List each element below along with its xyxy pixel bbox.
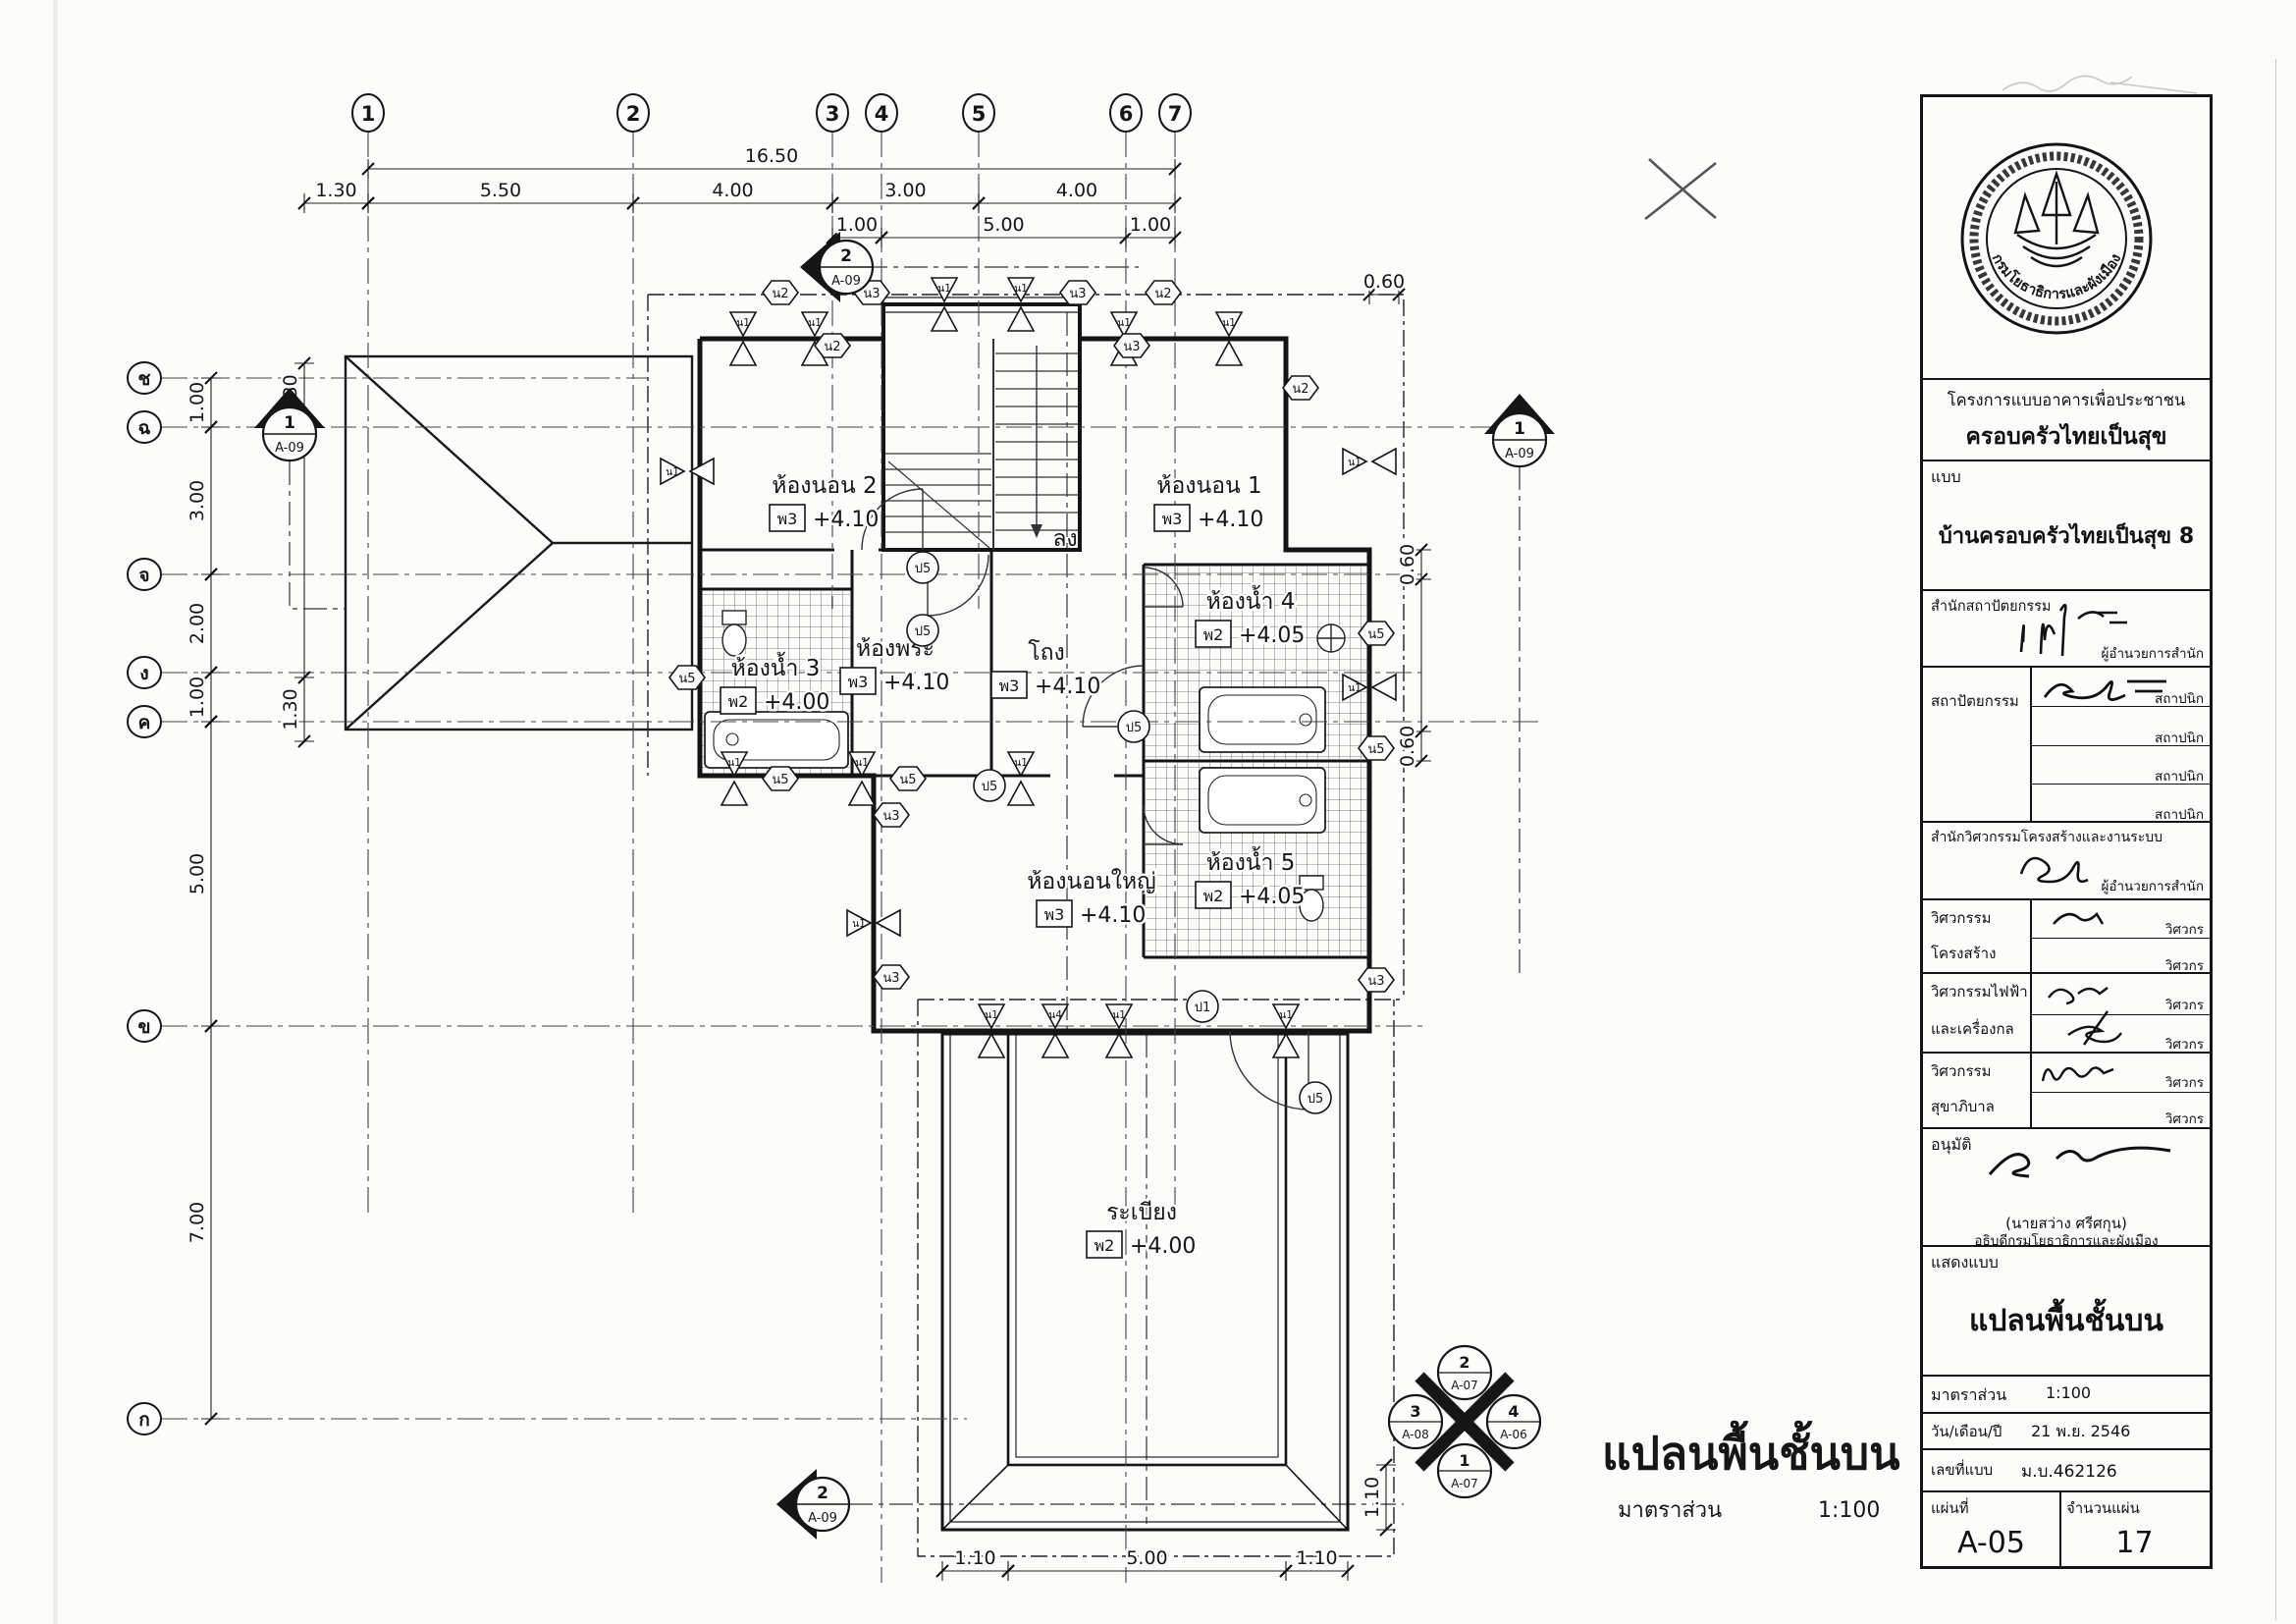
title-block-seal-row: กรมโยธาธิการและผังเมือง xyxy=(1923,97,2210,378)
architecture-row: สถาปัตยกรรม สถาปนิก สถาปนิก สถาปนิก สถาป… xyxy=(1923,666,2210,821)
window-marker-label: น1 xyxy=(666,466,679,478)
elevation-ref-number: 3 xyxy=(1410,1402,1420,1421)
grid-bubble-label: ง xyxy=(139,663,148,684)
signature-struct-engineer xyxy=(2046,902,2144,936)
eng-sani-label2: สุขาภิบาล xyxy=(1931,1095,1995,1118)
window-type-tag-label: น5 xyxy=(678,672,695,686)
hip-roof-plan xyxy=(346,356,692,730)
dimension-label: 5.00 xyxy=(187,853,208,894)
section-marker-1-A-09: 1A-09 xyxy=(1484,394,1555,466)
model-name: บ้านครอบครัวไทยเป็นสุข 8 xyxy=(1923,518,2210,553)
section-marker-number: 1 xyxy=(284,413,295,433)
window-marker-label: น1 xyxy=(1117,317,1131,329)
balcony-corner-miter xyxy=(1286,1465,1348,1530)
marker-triangle xyxy=(721,782,747,805)
window-marker-น1: น1 xyxy=(849,752,875,805)
drawing-title: แปลนพื้นชั้นบน xyxy=(1923,1298,2210,1344)
window-type-tag-น2: น2 xyxy=(763,281,798,304)
window-marker-label: น1 xyxy=(727,757,741,769)
show-label: แสดงแบบ xyxy=(1931,1251,1999,1275)
dimension-label: 1.30 xyxy=(280,688,301,730)
dimension-label: 1.10 xyxy=(954,1547,995,1569)
window-type-tag-น3: น3 xyxy=(874,803,909,827)
window-type-tag-label: น2 xyxy=(1292,382,1308,397)
dimension-label: 3.00 xyxy=(187,480,208,521)
grid-bubble-label: ฉ xyxy=(138,417,151,439)
room-name: ห้องน้ำ 5 xyxy=(1206,846,1296,876)
project-line1: โครงการแบบอาคารเพื่อประชาชน xyxy=(1923,388,2210,413)
eng-elec-label1: วิศวกรรมไฟฟ้า xyxy=(1931,980,2028,1003)
drawing-title-row: แสดงแบบ แปลนพื้นชั้นบน xyxy=(1923,1245,2210,1375)
marker-triangle xyxy=(979,1034,1004,1057)
signature-approver xyxy=(1972,1135,2198,1186)
room-name: ห้องนอน 1 xyxy=(1156,473,1261,499)
marker-triangle xyxy=(1372,449,1396,474)
window-type-tag-น2: น2 xyxy=(815,334,850,357)
title-block-project-row: โครงการแบบอาคารเพื่อประชาชน ครอบครัวไทยเ… xyxy=(1923,378,2210,460)
grid-bubble-label: ค xyxy=(138,712,151,733)
stair-down-label: ลง xyxy=(1052,526,1077,552)
floor-finish-code: พ3 xyxy=(1162,510,1183,528)
marker-triangle xyxy=(1372,675,1396,700)
dimension-label: 1.00 xyxy=(1130,214,1171,236)
window-type-tag-label: น3 xyxy=(882,971,899,986)
floor-finish-code: พ2 xyxy=(1203,625,1224,644)
section-marker-number: 2 xyxy=(817,1484,828,1503)
seal-emblem xyxy=(2015,174,2098,266)
dimension-label: 5.50 xyxy=(480,180,521,201)
door-type-tag-label: ป5 xyxy=(982,780,998,794)
sheet-label: แผ่นที่ xyxy=(1931,1496,1969,1520)
window-type-tag-label: น3 xyxy=(1123,340,1140,354)
approve-label: อนุมัติ xyxy=(1931,1133,1971,1158)
floor-finish-code: พ3 xyxy=(848,673,869,691)
dimension-label: 0.60 xyxy=(1363,271,1405,293)
director-caption: ผู้อำนวยการสำนัก xyxy=(2101,875,2204,896)
plan-caption-scale-value: 1:100 xyxy=(1818,1498,1880,1523)
engineer-caption: วิศวกร xyxy=(2165,1071,2204,1093)
floor-finish-code: พ2 xyxy=(1095,1236,1115,1255)
sheet-edge-line xyxy=(2275,59,2276,1620)
dimension-label: 0.60 xyxy=(1397,544,1418,585)
cell-divider xyxy=(2030,668,2032,821)
eng-elec-label2: และเครื่องกล xyxy=(1931,1017,2014,1041)
architect-caption: สถาปนิก xyxy=(2155,727,2204,748)
marker-triangle xyxy=(849,782,875,805)
dimension-label: 16.50 xyxy=(745,145,798,167)
eng-struct-label1: วิศวกรรม xyxy=(1931,906,1991,930)
number-row: เลขที่แบบ ม.บ.462126 xyxy=(1923,1448,2210,1490)
section-marker-sheet: A-09 xyxy=(275,441,304,456)
window-marker-label: น4 xyxy=(1048,1009,1062,1021)
window-type-tag-label: น2 xyxy=(772,287,788,301)
approval-row: อนุมัติ (นายสว่าง ศรีศกุน) อธิบดีกรมโยธา… xyxy=(1923,1127,2210,1245)
window-type-tag-label: น5 xyxy=(772,773,788,787)
window-marker-label: น1 xyxy=(937,283,951,295)
room-name: ห้องน้ำ 4 xyxy=(1206,585,1296,615)
eng-elec-row: วิศวกรรมไฟฟ้า และเครื่องกล วิศวกร วิศวกร xyxy=(1923,972,2210,1052)
lavatory-bath4 xyxy=(1317,624,1345,652)
title-block: กรมโยธาธิการและผังเมือง โครงการแบบอาคารเ… xyxy=(1920,94,2213,1569)
grid-bubble-label: 1 xyxy=(361,102,376,126)
floor-level: +4.05 xyxy=(1239,623,1305,648)
window-marker-label: น1 xyxy=(1112,1009,1126,1021)
window-marker-label: น1 xyxy=(1348,457,1362,468)
section-marker-number: 1 xyxy=(1514,419,1525,439)
grid-bubble-label: 3 xyxy=(826,102,840,126)
grid-bubble-label: 6 xyxy=(1119,102,1134,126)
engineer-caption: วิศวกร xyxy=(2165,918,2204,940)
section-marker-sheet: A-09 xyxy=(808,1511,837,1526)
dimension-label: 4.00 xyxy=(1056,180,1097,201)
dimension-label: 0.60 xyxy=(1397,726,1418,767)
window-type-tag-น3: น3 xyxy=(1060,281,1095,304)
elevation-ref-right: 4A-06 xyxy=(1487,1395,1540,1448)
dimension-label: 1.10 xyxy=(1362,1477,1383,1518)
window-marker-label: น1 xyxy=(985,1009,998,1021)
bathtub-bath4 xyxy=(1200,687,1325,752)
window-type-tag-น5: น5 xyxy=(1359,736,1394,760)
window-type-tag-label: น3 xyxy=(882,809,899,824)
window-marker-label: น1 xyxy=(1222,317,1236,329)
marker-triangle xyxy=(1216,342,1242,365)
stair-details xyxy=(888,339,1042,550)
sheet-number-row: แผ่นที่ จำนวนแผ่น A-05 17 xyxy=(1923,1490,2210,1569)
window-type-tag-label: น3 xyxy=(1367,974,1384,989)
window-marker-label: น1 xyxy=(852,918,866,930)
door-type-tag-label: ป5 xyxy=(1126,721,1143,735)
window-type-tag-น3: น3 xyxy=(1359,968,1394,992)
dimension-label: 7.00 xyxy=(187,1202,208,1243)
section-marker-number: 2 xyxy=(840,246,852,266)
project-line2: ครอบครัวไทยเป็นสุข xyxy=(1923,419,2210,455)
dimension-label: 5.00 xyxy=(983,214,1024,236)
architecture-label: สถาปัตยกรรม xyxy=(1931,689,2019,713)
dimension-label: 4.00 xyxy=(712,180,753,201)
hatched-wall xyxy=(883,298,1080,312)
door-type-tag-ป1: ป1 xyxy=(1187,991,1218,1022)
drawing-sheet: 1234567ชฉจงคขก 16.501.305.504.003.004.00… xyxy=(0,0,2296,1624)
window-type-tag-น5: น5 xyxy=(890,767,926,790)
window-type-tag-label: น5 xyxy=(1367,627,1384,642)
window-type-tag-น5: น5 xyxy=(763,767,798,790)
model-label: แบบ xyxy=(1931,465,1961,490)
pencil-scribble xyxy=(2002,76,2197,93)
window-marker-น1: น1 xyxy=(721,752,747,805)
room-name: ห้องน้ำ 3 xyxy=(731,652,821,681)
room-name: ห้องนอน 2 xyxy=(772,473,877,499)
plan-caption-title: แปลนพื้นชั้นบน xyxy=(1602,1420,1900,1480)
grid-bubble-label: 5 xyxy=(972,102,987,126)
window-type-tag-label: น2 xyxy=(1154,287,1171,301)
elevation-ref-sheet: A-07 xyxy=(1451,1379,1478,1392)
floor-level: +4.10 xyxy=(1080,903,1146,928)
handwritten-x-mark xyxy=(1645,159,1716,219)
window-marker-label: น1 xyxy=(1014,283,1028,295)
marker-triangle xyxy=(1273,1034,1299,1057)
grid-bubble-label: 2 xyxy=(626,102,641,126)
marker-triangle xyxy=(877,910,900,936)
signature-elec-engineer xyxy=(2039,976,2157,1053)
number-label: เลขที่แบบ xyxy=(1931,1458,1993,1482)
title-block-model-row: แบบ บ้านครอบครัวไทยเป็นสุข 8 xyxy=(1923,460,2210,589)
eng-struct-label2: โครงสร้าง xyxy=(1931,942,1996,965)
director-caption: ผู้อำนวยการสำนัก xyxy=(2101,642,2204,664)
floor-finish-code: พ2 xyxy=(728,692,749,711)
elevation-ref-number: 1 xyxy=(1459,1451,1469,1470)
window-type-tag-น2: น2 xyxy=(1283,376,1318,400)
eng-sani-label1: วิศวกรรม xyxy=(1931,1059,1991,1083)
date-row: วัน/เดือน/ปี 21 พ.ย. 2546 xyxy=(1923,1412,2210,1448)
window-marker-label: น1 xyxy=(808,317,822,329)
window-type-tag-label: น3 xyxy=(1069,287,1086,301)
dimension-label: 1.10 xyxy=(1296,1547,1337,1569)
scale-row: มาตราส่วน 1:100 xyxy=(1923,1375,2210,1412)
floor-level: +4.00 xyxy=(764,690,829,715)
date-label: วัน/เดือน/ปี xyxy=(1931,1420,2002,1443)
grid-bubble-label: ข xyxy=(138,1016,151,1038)
dimension-label: 5.00 xyxy=(1126,1547,1167,1569)
door-type-tag-ป5: ป5 xyxy=(907,615,938,646)
plan-caption-scale-label: มาตราส่วน xyxy=(1618,1498,1722,1523)
stair-direction-arrow xyxy=(1031,524,1042,538)
window-type-tag-น3: น3 xyxy=(874,965,909,989)
window-marker-น1: น1 xyxy=(661,459,714,484)
section-marker-2-A-09: 2A-09 xyxy=(776,1469,849,1540)
window-marker-label: น1 xyxy=(1014,757,1028,769)
elevation-ref-top: 2A-07 xyxy=(1438,1346,1491,1399)
grid-bubble-label: ก xyxy=(138,1409,150,1431)
eng-struct-row: วิศวกรรม โครงสร้าง วิศวกร วิศวกร xyxy=(1923,898,2210,972)
engineer-caption: วิศวกร xyxy=(2165,994,2204,1015)
dimension-label: 1.00 xyxy=(187,382,208,423)
dimension-label: 1.00 xyxy=(836,214,878,236)
scale-value: 1:100 xyxy=(2046,1383,2091,1402)
architect-caption: สถาปนิก xyxy=(2155,765,2204,786)
window-type-tag-label: น5 xyxy=(1367,742,1384,757)
window-marker-น1: น1 xyxy=(1343,449,1396,474)
grid-bubble-label: จ xyxy=(138,565,149,586)
dimension-label: 1.00 xyxy=(187,677,208,718)
door-type-tag-ป5: ป5 xyxy=(1300,1082,1331,1113)
window-marker-label: น1 xyxy=(855,757,869,769)
window-type-tag-label: น5 xyxy=(899,773,916,787)
window-marker-น1: น1 xyxy=(1008,752,1034,805)
window-marker-label: น1 xyxy=(736,317,750,329)
dimension-label: 2.00 xyxy=(187,603,208,644)
department-seal: กรมโยธาธิการและผังเมือง xyxy=(1923,97,2216,378)
door-type-tag-label: ป1 xyxy=(1195,1001,1211,1015)
architect-caption: สถาปนิก xyxy=(2155,687,2204,709)
total-label: จำนวนแผ่น xyxy=(2066,1496,2140,1520)
elevation-ref-left: 3A-08 xyxy=(1389,1395,1442,1448)
marker-triangle xyxy=(1042,1034,1068,1057)
grid-bubble-label: 4 xyxy=(875,102,889,126)
window-type-tag-น3: น3 xyxy=(1114,334,1149,357)
window-type-tag-น5: น5 xyxy=(669,666,705,689)
door-type-tag-label: ป5 xyxy=(915,562,932,576)
floor-level: +4.00 xyxy=(1130,1234,1196,1259)
elevation-ref-number: 2 xyxy=(1459,1353,1469,1372)
window-marker-label: น1 xyxy=(1348,682,1362,694)
total-value: 17 xyxy=(2059,1526,2210,1560)
window-marker-label: น1 xyxy=(1279,1009,1293,1021)
scale-label: มาตราส่วน xyxy=(1931,1383,2006,1408)
elevation-ref-number: 4 xyxy=(1508,1402,1519,1421)
dimension-label: 1.30 xyxy=(315,180,356,201)
elevation-ref-bottom: 1A-07 xyxy=(1438,1444,1491,1497)
marker-triangle xyxy=(1106,1034,1132,1057)
toilet-bath3 xyxy=(722,611,746,656)
section-marker-sheet: A-09 xyxy=(831,274,861,289)
date-value: 21 พ.ย. 2546 xyxy=(2031,1420,2130,1444)
grid-bubble-label: ช xyxy=(138,368,151,390)
elevation-ref-sheet: A-06 xyxy=(1500,1428,1527,1441)
floor-level: +4.10 xyxy=(813,508,879,532)
eng-sani-row: วิศวกรรม สุขาภิบาล วิศวกร วิศวกร xyxy=(1923,1052,2210,1127)
door-type-tag-ป5: ป5 xyxy=(1118,711,1149,742)
dimension-label: 3.00 xyxy=(884,180,926,201)
arch-office-row: สำนักสถาปัตยกรรม ผู้อำนวยการสำนัก xyxy=(1923,589,2210,666)
floor-finish-code: พ3 xyxy=(999,677,1020,695)
section-marker-1-A-09: 1A-09 xyxy=(254,388,325,460)
door-type-tag-label: ป5 xyxy=(915,624,932,639)
window-type-tag-label: น2 xyxy=(824,340,840,354)
balcony-corner-miter xyxy=(942,1465,1008,1530)
number-value: ม.บ.462126 xyxy=(2021,1458,2117,1485)
section-marker-sheet: A-09 xyxy=(1505,447,1534,461)
marker-triangle xyxy=(730,342,756,365)
engineer-caption: วิศวกร xyxy=(2165,1108,2204,1129)
window-type-tag-label: น3 xyxy=(863,287,880,301)
elevation-ref-sheet: A-07 xyxy=(1451,1477,1478,1490)
floor-finish-code: พ3 xyxy=(1044,905,1065,924)
room-name: ห้องนอนใหญ่ xyxy=(1027,868,1155,894)
signature-sani-engineer xyxy=(2037,1056,2145,1091)
balcony-walls xyxy=(942,1034,1348,1530)
floor-finish-code: พ2 xyxy=(1203,887,1224,905)
bathtub-bath5 xyxy=(1200,768,1325,833)
door-type-tag-label: ป5 xyxy=(1308,1092,1324,1107)
sheet-value: A-05 xyxy=(1923,1526,2059,1560)
grid-bubble-label: 7 xyxy=(1168,102,1183,126)
floor-level: +4.10 xyxy=(1198,508,1263,532)
floor-level: +4.10 xyxy=(883,671,949,695)
stair-treads xyxy=(885,353,1078,532)
marker-triangle xyxy=(1008,782,1034,805)
floor-finish-code: พ3 xyxy=(777,510,798,528)
elevation-ref-sheet: A-08 xyxy=(1402,1428,1429,1441)
door-type-tag-ป5: ป5 xyxy=(974,770,1005,801)
window-type-tag-น2: น2 xyxy=(1146,281,1181,304)
door-type-tag-ป5: ป5 xyxy=(907,552,938,583)
floor-level: +4.05 xyxy=(1239,885,1305,909)
floor-level: +4.10 xyxy=(1035,675,1100,699)
window-type-tag-น5: น5 xyxy=(1359,622,1394,645)
room-name: โถง xyxy=(1028,639,1065,666)
room-name: ระเบียง xyxy=(1106,1200,1177,1225)
eng-office-row: สำนักวิศวกรรมโครงสร้างและงานระบบ ผู้อำนว… xyxy=(1923,821,2210,898)
